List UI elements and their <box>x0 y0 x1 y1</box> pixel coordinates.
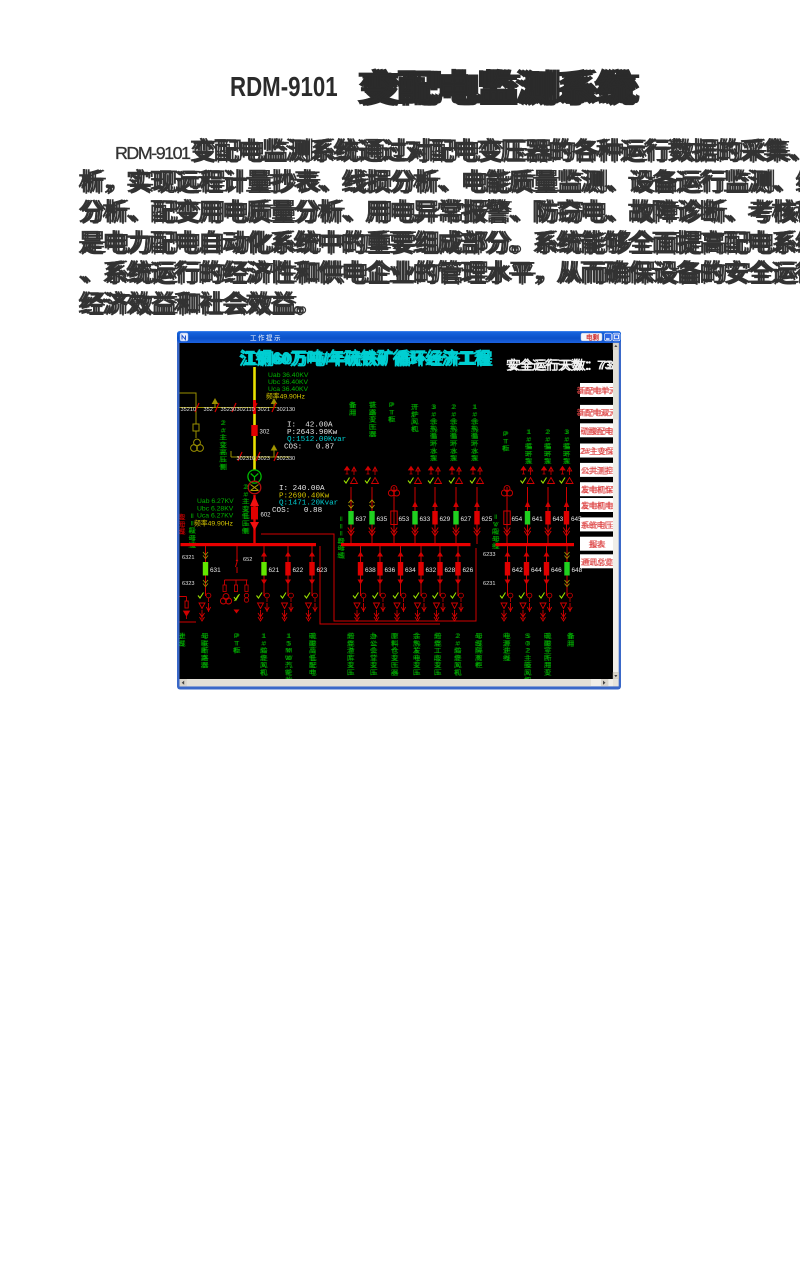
svg-text:623: 623 <box>317 567 328 574</box>
svg-text:621: 621 <box>269 567 280 574</box>
svg-text:6231: 6231 <box>483 581 495 587</box>
svg-text:641: 641 <box>532 516 543 523</box>
svg-text:635: 635 <box>377 516 388 523</box>
svg-text:302110: 302110 <box>237 407 255 413</box>
svg-text:电源进线: 电源进线 <box>504 631 511 662</box>
svg-text:Uab 36.40KVUbc 36.40KVUca 36.4: Uab 36.40KVUbc 36.40KVUca 36.40KV频率49.90… <box>266 372 309 401</box>
svg-text:644: 644 <box>531 567 542 574</box>
svg-text:安全运行天数：732 天: 安全运行天数：732 天 <box>508 358 621 373</box>
svg-text:627: 627 <box>461 516 472 523</box>
svg-text:654: 654 <box>512 516 523 523</box>
svg-text:焙烧工段变压: 焙烧工段变压 <box>435 631 442 677</box>
svg-text:发电机保: 发电机保 <box>582 485 614 495</box>
svg-text:备用: 备用 <box>350 400 357 416</box>
svg-text:铁路变压器: 铁路变压器 <box>370 400 377 438</box>
svg-text:302: 302 <box>260 430 271 436</box>
svg-text:进线: 进线 <box>179 632 186 647</box>
svg-text:622: 622 <box>293 567 304 574</box>
svg-text:办公会堂变压: 办公会堂变压 <box>371 631 378 677</box>
svg-text:352: 352 <box>204 407 213 413</box>
svg-text:6321: 6321 <box>182 555 194 561</box>
svg-text:通讯总览: 通讯总览 <box>582 557 614 567</box>
svg-text:江铜60万吨/年硫铁矿循环经济工程: 江铜60万吨/年硫铁矿循环经济工程 <box>240 348 491 367</box>
svg-text:652: 652 <box>243 557 252 563</box>
svg-text:626: 626 <box>463 567 474 574</box>
svg-text:638: 638 <box>365 567 376 574</box>
svg-text:302330: 302330 <box>277 456 296 462</box>
svg-text:电剩: 电剩 <box>586 332 600 341</box>
svg-text:302310: 302310 <box>237 456 256 462</box>
svg-text:646: 646 <box>551 567 562 574</box>
svg-text:硫酸配电: 硫酸配电 <box>582 426 614 436</box>
svg-text:625: 625 <box>482 516 493 523</box>
svg-text:新配电单元: 新配电单元 <box>578 386 618 396</box>
svg-text:637: 637 <box>356 516 367 523</box>
svg-text:633: 633 <box>420 516 431 523</box>
svg-text:母线隔离柜: 母线隔离柜 <box>476 632 483 669</box>
svg-text:653: 653 <box>399 516 410 523</box>
svg-text:报表: 报表 <box>590 539 606 549</box>
svg-text:602: 602 <box>261 513 272 519</box>
svg-text:642: 642 <box>512 567 523 574</box>
svg-text:636: 636 <box>385 567 396 574</box>
svg-text:余热发电变压: 余热发电变压 <box>414 631 421 677</box>
svg-text:硫酸高低配电: 硫酸高低配电 <box>310 631 317 677</box>
svg-text:6233: 6233 <box>483 552 495 558</box>
svg-text:硫酸室所用变: 硫酸室所用变 <box>545 631 552 677</box>
svg-text:35230: 35230 <box>221 407 237 413</box>
svg-text:段母线: 段母线 <box>179 512 186 536</box>
svg-text:新配电双元: 新配电双元 <box>578 407 618 417</box>
svg-text:Uab 6.27KVUbc 6.28KVUca 6.27KV: Uab 6.27KVUbc 6.28KVUca 6.27KV频率49.90Hz <box>194 498 234 527</box>
svg-text:3021: 3021 <box>258 407 270 413</box>
svg-text:母联断路器: 母联断路器 <box>202 632 209 669</box>
svg-text:6323: 6323 <box>182 581 194 587</box>
svg-text:公共测控: 公共测控 <box>582 465 614 475</box>
svg-text:2#主变保: 2#主变保 <box>581 446 614 456</box>
svg-text:629: 629 <box>440 516 451 523</box>
svg-text:643: 643 <box>553 516 564 523</box>
svg-text:3023: 3023 <box>258 456 270 462</box>
svg-text:35210: 35210 <box>181 407 197 413</box>
svg-text:原料仓变压器: 原料仓变压器 <box>392 632 399 677</box>
svg-text:631: 631 <box>210 567 221 574</box>
svg-text:备用: 备用 <box>568 631 575 647</box>
svg-text:634: 634 <box>405 567 416 574</box>
svg-text:工作提示: 工作提示 <box>250 333 282 342</box>
svg-text:632: 632 <box>426 567 437 574</box>
svg-text:发电机电: 发电机电 <box>582 501 614 511</box>
svg-text:628: 628 <box>445 567 456 574</box>
svg-text:系统电压: 系统电压 <box>582 520 614 530</box>
svg-text:焙烧渣库变压: 焙烧渣库变压 <box>348 631 355 677</box>
svg-text:302130: 302130 <box>277 407 296 413</box>
svg-text:开炉风机: 开炉风机 <box>412 403 419 433</box>
